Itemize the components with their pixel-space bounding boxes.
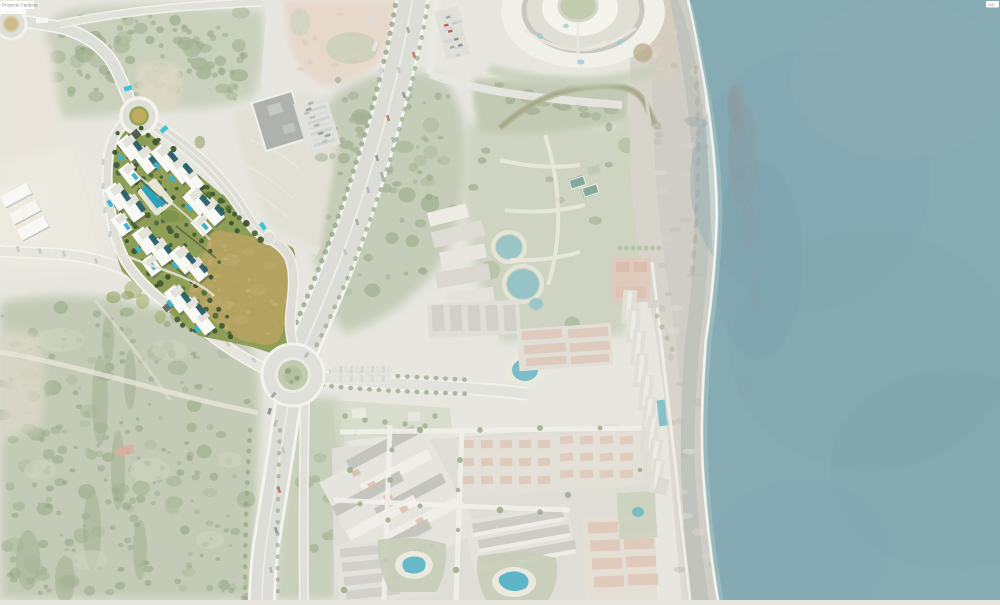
- svg-text:Lidl: Lidl: [988, 3, 994, 7]
- svg-text:Proyecto Cardena: Proyecto Cardena: [2, 3, 38, 8]
